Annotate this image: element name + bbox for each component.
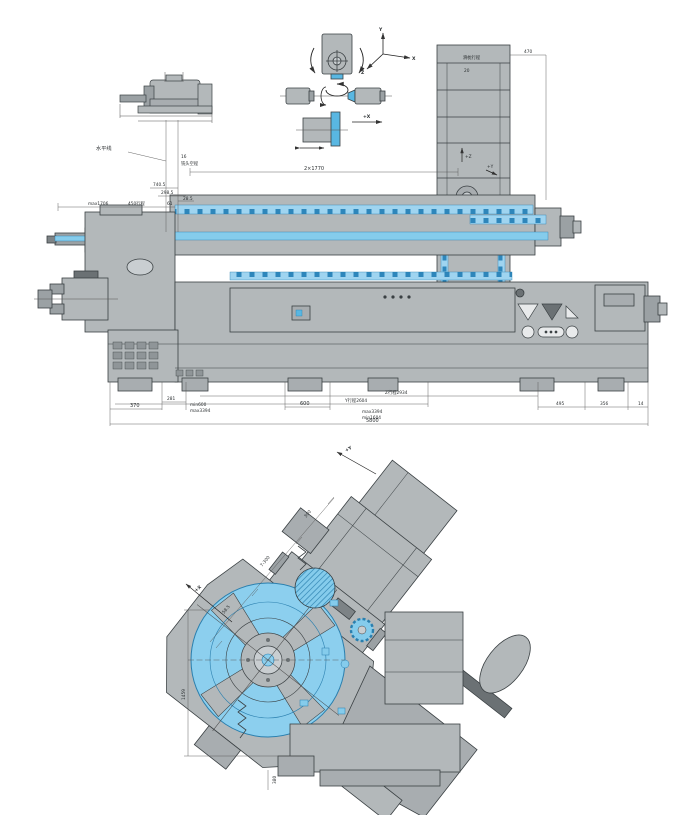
dim-max3394b: max3394 [362, 409, 383, 415]
ram-travel-label: 滑枕行程 [463, 54, 481, 61]
tailstock [595, 285, 667, 331]
dim-y-travel: Y行程2604 [344, 397, 367, 404]
level-line-label: 水平线 [96, 144, 112, 152]
axis-label-z: Z [361, 70, 365, 76]
gap-label: 铣头空程 [181, 160, 199, 167]
plan-view: +X +Y 1459 7-300 300 58.5 380 [125, 418, 587, 815]
plus-z-label: +Z [465, 154, 472, 160]
dim-740: 740.5 [153, 182, 166, 188]
axis-label-y: Y [378, 27, 383, 33]
dim-1459: 1459 [181, 689, 187, 700]
dim-min600: min600 [190, 402, 207, 408]
plan-plus-y-label: +Y [344, 445, 354, 454]
dim-356: 356 [600, 401, 608, 407]
dim-380: 380 [272, 776, 278, 784]
dim-5800: 5800 [366, 418, 379, 424]
axis-icon-cluster: Y X Z +X [280, 27, 416, 148]
dim-28: 28.5 [183, 196, 193, 202]
dim-470: 470 [524, 49, 532, 55]
dim-2x1770: 2×1770 [304, 166, 324, 172]
dim-7x300: 7-300 [259, 555, 272, 569]
column [437, 45, 510, 305]
motor-detail-view [120, 72, 212, 123]
dim-z-travel: Z行程2934 [385, 389, 408, 396]
dim-61: 61 [167, 201, 173, 207]
cad-canvas: Y X Z +X [0, 0, 700, 815]
dim-20: 20 [464, 68, 470, 74]
drawing-page: Y X Z +X [0, 0, 700, 815]
dim-450-travel: 450行程 [128, 200, 145, 207]
dim-281: 281 [167, 396, 175, 402]
dim-16: 16 [181, 154, 187, 160]
dim-max3394: max3394 [190, 408, 211, 414]
coordinate-tripod-icon [367, 33, 410, 69]
axis-label-x: X [412, 56, 416, 62]
dim-298: 298.5 [161, 190, 174, 196]
ram-tool-icon [296, 112, 348, 148]
x-direction-arrow: +X [352, 114, 382, 122]
dim-max1706: max1706 [88, 201, 109, 207]
plus-x-label: +X [363, 114, 371, 120]
dim-600: 600 [300, 401, 310, 407]
plus-y-label: +Y [487, 164, 494, 170]
dim-495: 495 [556, 401, 564, 407]
headstock [34, 205, 175, 332]
dim-370: 370 [130, 403, 140, 409]
horizontal-spindle-icons [280, 87, 392, 105]
dim-14: 14 [638, 401, 644, 407]
vertical-head-icon [322, 34, 352, 79]
